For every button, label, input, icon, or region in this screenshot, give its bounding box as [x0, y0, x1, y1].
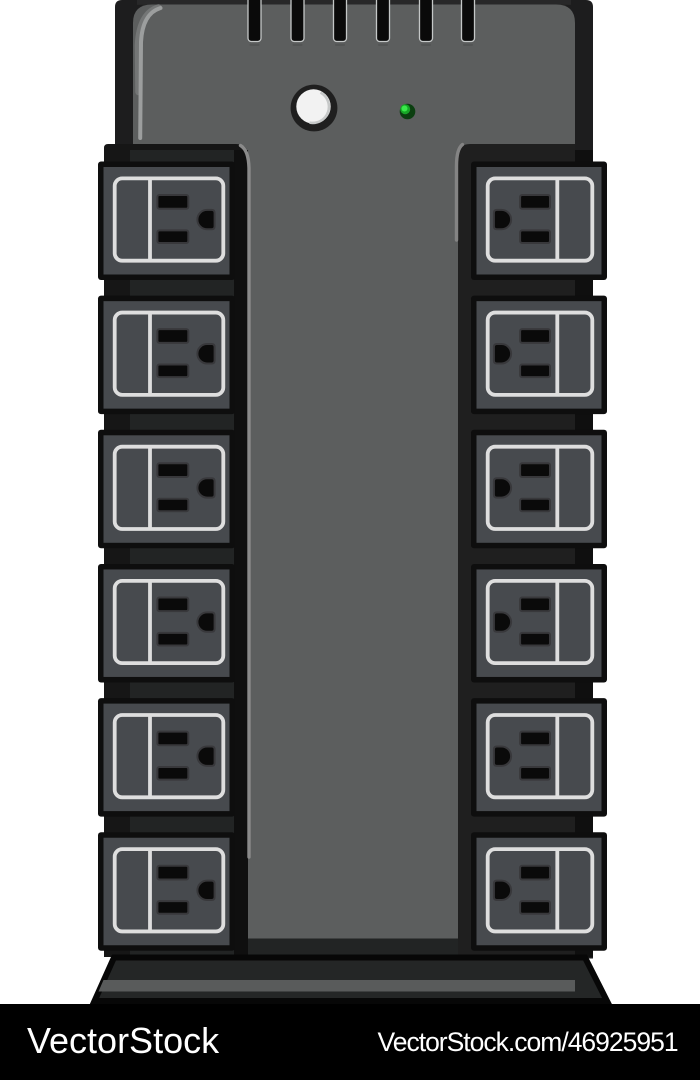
svg-text:VectorStock: VectorStock: [27, 1020, 220, 1061]
svg-text:VectorStock.com/46925951: VectorStock.com/46925951: [378, 1027, 678, 1057]
